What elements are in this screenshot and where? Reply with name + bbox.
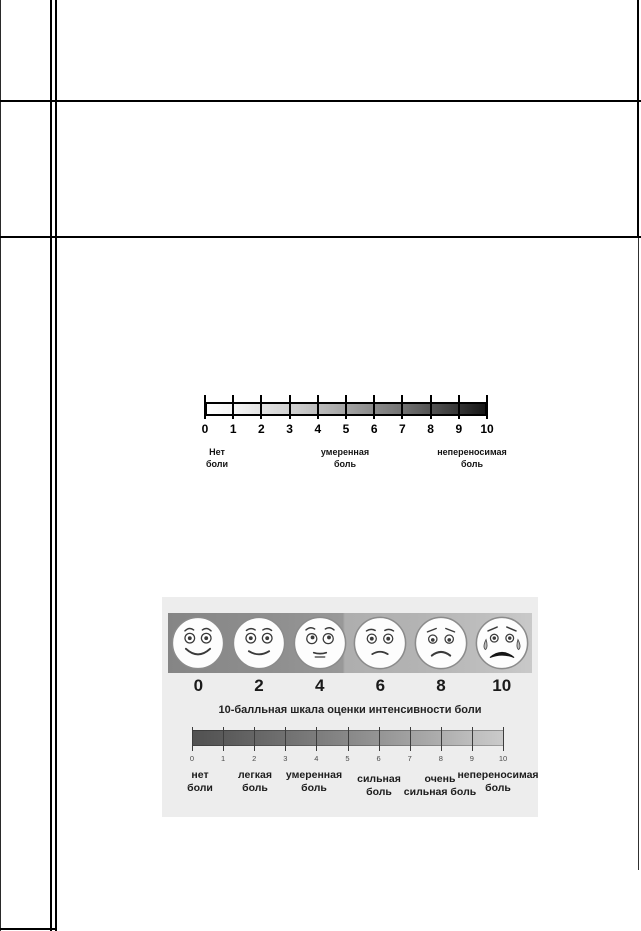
lower-scale-tick-number: 0	[190, 754, 194, 763]
lower-scale-tick-number: 9	[470, 754, 474, 763]
numeric-scale-tick-number: 3	[286, 422, 293, 436]
lower-scale-labels: нетболилегкаябольумереннаябольсильнаябол…	[162, 769, 538, 813]
face-value: 8	[411, 676, 472, 696]
lower-scale-label: сильнаяболь	[357, 773, 401, 798]
faces-scale-title: 10-балльная шкала оценки интенсивности б…	[162, 704, 538, 716]
face-value: 4	[289, 676, 350, 696]
lower-scale-label: нетболи	[187, 769, 213, 794]
lower-scale-tick-number: 3	[283, 754, 287, 763]
numeric-scale-label: умереннаяболь	[321, 447, 369, 470]
lower-scale-tick	[223, 727, 224, 751]
lower-gradient-scale: 012345678910	[192, 727, 503, 769]
lower-scale-tick	[285, 727, 286, 751]
numeric-scale-tick-number: 1	[230, 422, 237, 436]
lower-scale-label: умереннаяболь	[286, 769, 342, 794]
document-page: 012345678910 Нетболиумереннаябольнеперен…	[0, 0, 641, 931]
lower-scale-tick	[472, 727, 473, 751]
lower-scale-tick	[316, 727, 317, 751]
numeric-scale-tick-number: 7	[399, 422, 406, 436]
face-cell	[168, 614, 229, 672]
numeric-scale-tick	[232, 395, 234, 419]
table-right-border-top	[637, 0, 639, 238]
page-left-edge-line	[0, 0, 1, 931]
pain-face-0-icon	[169, 614, 227, 672]
lower-scale-tick-number: 8	[439, 754, 443, 763]
numeric-scale-tick-number: 8	[427, 422, 434, 436]
numeric-scale-tick-number: 10	[480, 422, 493, 436]
numeric-scale-tick	[289, 395, 291, 419]
lower-scale-tick	[503, 727, 504, 751]
lower-scale-tick-number: 10	[499, 754, 507, 763]
lower-scale-label: легкаяболь	[238, 769, 272, 794]
lower-scale-tick-number: 6	[377, 754, 381, 763]
numeric-scale-tick	[486, 395, 488, 419]
lower-scale-tick	[254, 727, 255, 751]
face-value: 0	[168, 676, 229, 696]
table-bottom-left-border	[0, 928, 57, 930]
numeric-scale-tick-number: 9	[455, 422, 462, 436]
lower-scale-tick-number: 5	[345, 754, 349, 763]
numeric-scale-tick	[401, 395, 403, 419]
table-row-border-1	[0, 100, 641, 102]
lower-scale-tick-number: 4	[314, 754, 318, 763]
table-column-border-b	[55, 0, 57, 931]
numeric-scale-label: непереносимаяболь	[437, 447, 507, 470]
face-cell	[471, 614, 532, 672]
table-right-border-bottom	[638, 238, 639, 870]
numeric-scale-tick	[317, 395, 319, 419]
faces-values-row: 0246810	[168, 676, 532, 696]
face-value: 10	[471, 676, 532, 696]
pain-face-2-icon	[230, 614, 288, 672]
face-cell	[229, 614, 290, 672]
lower-scale-tick-number: 1	[221, 754, 225, 763]
pain-face-8-icon	[412, 614, 470, 672]
numeric-scale-tick	[260, 395, 262, 419]
lower-scale-tick	[192, 727, 193, 751]
face-cell	[350, 614, 411, 672]
numeric-scale-tick	[345, 395, 347, 419]
numeric-scale-tick	[204, 395, 206, 419]
face-value: 6	[350, 676, 411, 696]
pain-face-6-icon	[351, 614, 409, 672]
numeric-scale-tick	[458, 395, 460, 419]
pain-face-10-icon	[473, 614, 531, 672]
numeric-scale-tick-number: 0	[202, 422, 209, 436]
numeric-scale-tick	[373, 395, 375, 419]
pain-face-4-icon	[291, 614, 349, 672]
lower-scale-tick	[441, 727, 442, 751]
numeric-scale-tick-number: 2	[258, 422, 265, 436]
numeric-scale-label: Нетболи	[206, 447, 228, 470]
face-cell	[411, 614, 472, 672]
lower-scale-tick	[410, 727, 411, 751]
table-column-border-a	[50, 0, 52, 931]
face-value: 2	[229, 676, 290, 696]
lower-scale-tick	[379, 727, 380, 751]
table-row-border-2	[0, 236, 641, 238]
lower-scale-tick-number: 7	[408, 754, 412, 763]
numeric-scale-tick	[430, 395, 432, 419]
lower-scale-tick	[348, 727, 349, 751]
face-cell	[289, 614, 350, 672]
faces-pain-scale-image: 0246810 10-балльная шкала оценки интенси…	[162, 597, 538, 817]
numeric-pain-scale: 012345678910 Нетболиумереннаябольнеперен…	[205, 393, 487, 479]
numeric-scale-tick-number: 4	[314, 422, 321, 436]
faces-row	[168, 614, 532, 672]
numeric-scale-tick-number: 6	[371, 422, 378, 436]
lower-scale-tick-number: 2	[252, 754, 256, 763]
numeric-scale-tick-number: 5	[343, 422, 350, 436]
lower-scale-label: непереносимаяболь	[457, 769, 538, 794]
